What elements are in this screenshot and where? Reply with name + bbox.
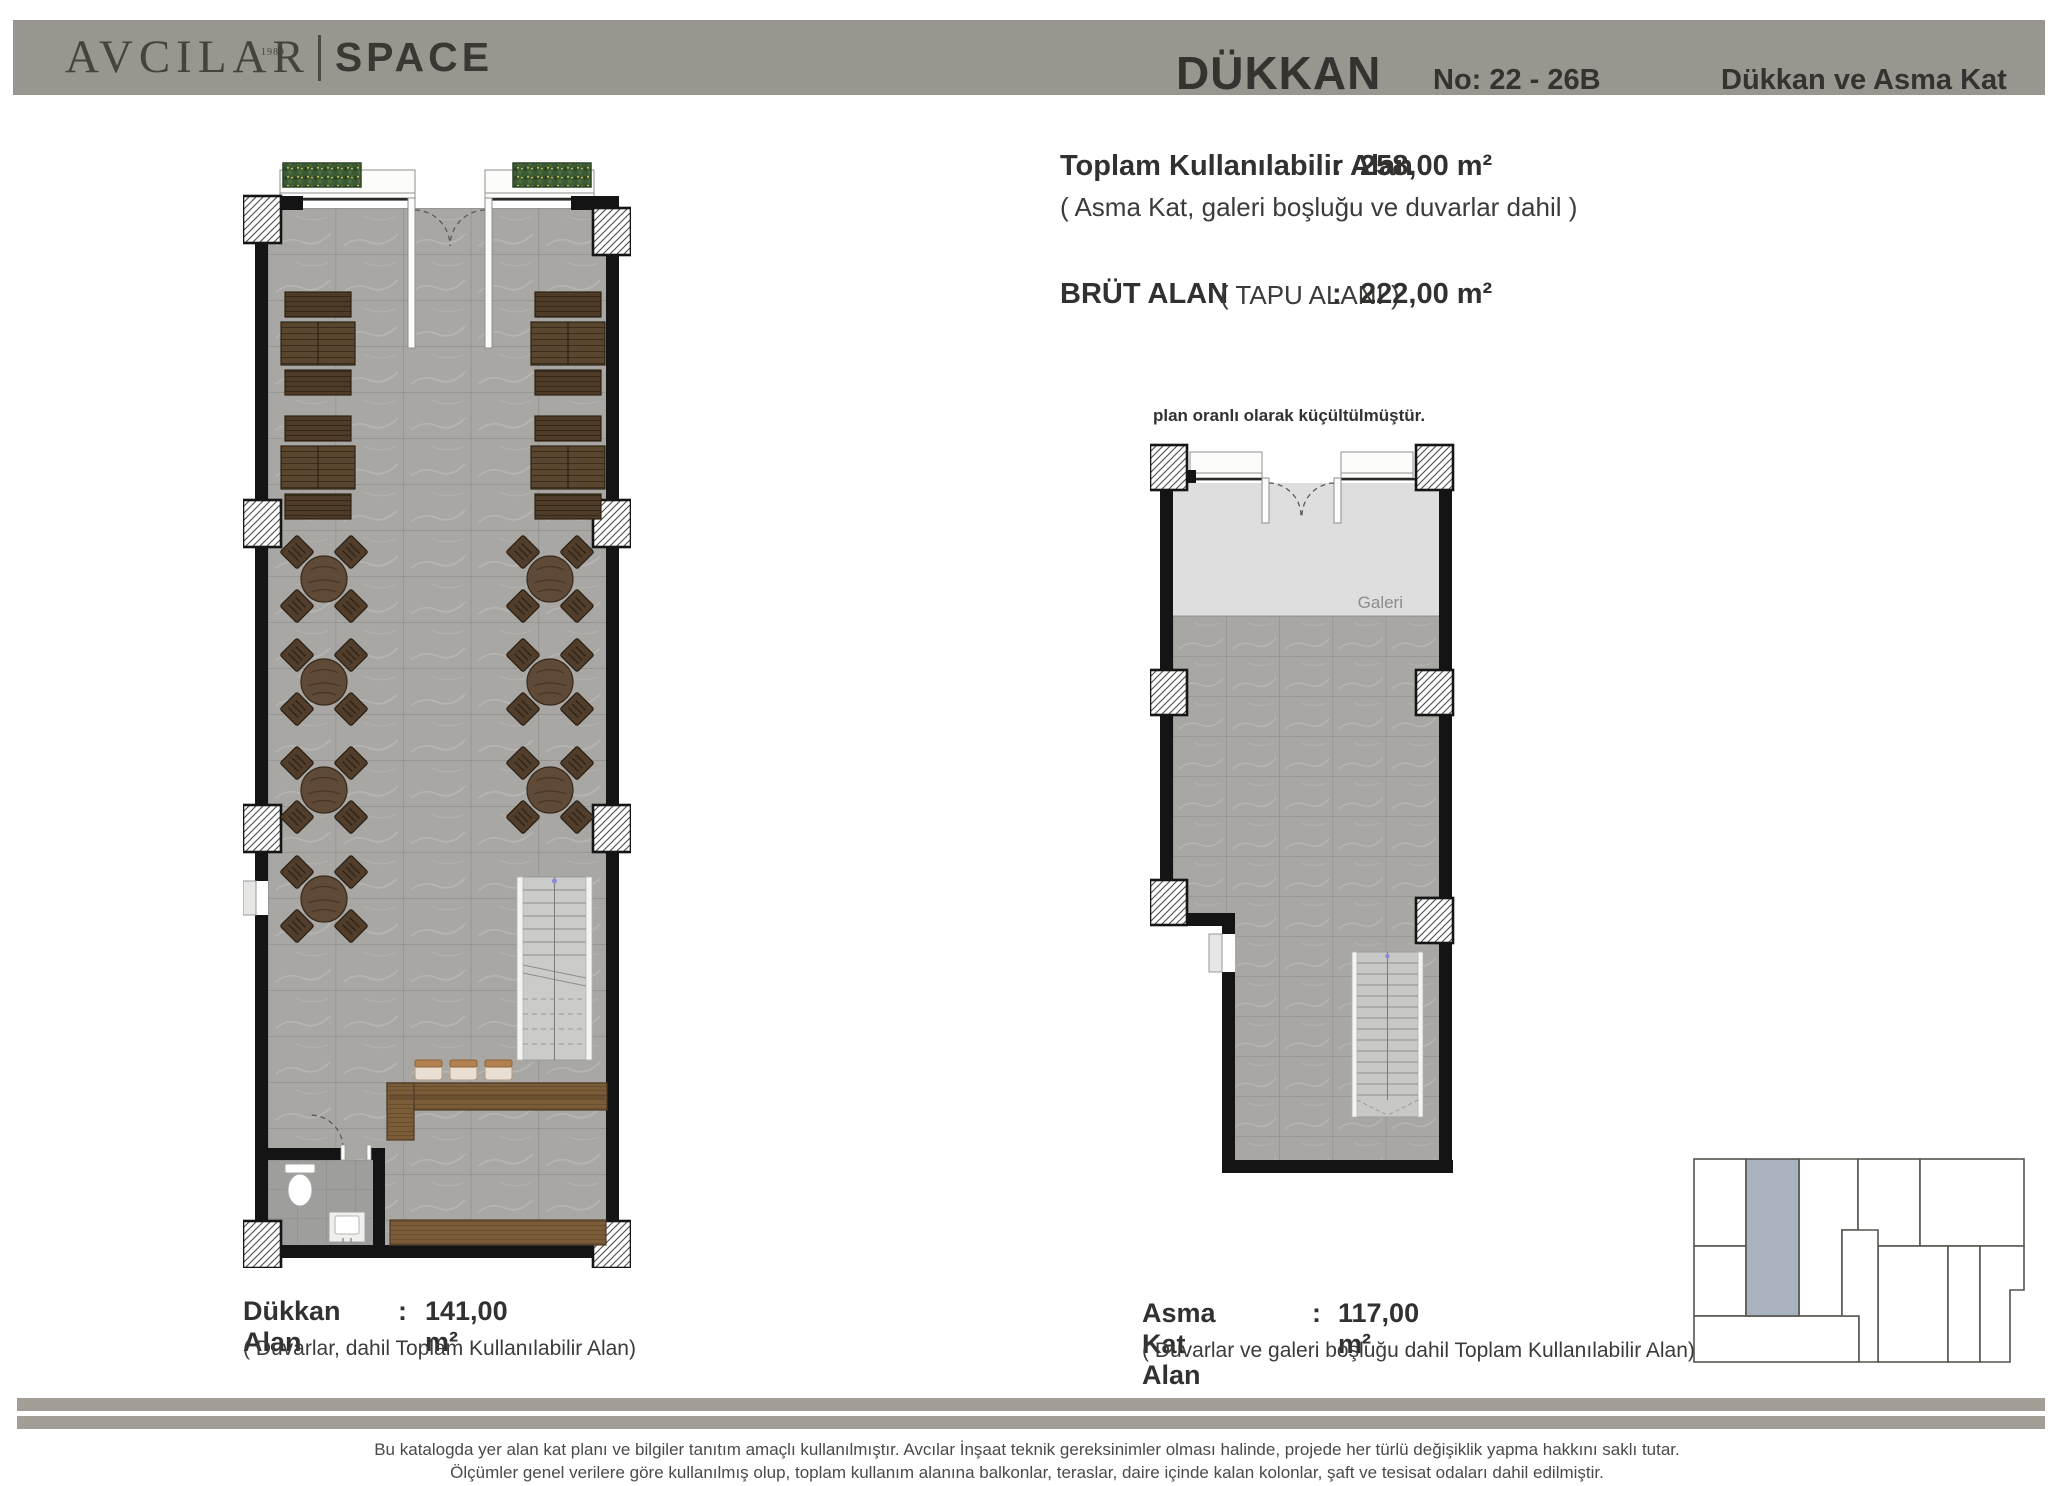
side-door xyxy=(1209,934,1222,972)
galeri-label: Galeri xyxy=(1358,593,1403,612)
dukkan-area-note: ( Duvarlar, dahil Toplam Kullanılabilir … xyxy=(243,1337,636,1361)
site-key-plan xyxy=(1693,1158,2026,1364)
stairs xyxy=(1352,952,1423,1117)
dukkan-floor-plan xyxy=(243,148,631,1268)
unit-outline xyxy=(1694,1246,1746,1316)
total-area-line: Toplam Kullanılabilir Alan : 258,00 m² xyxy=(1060,150,1960,190)
bench-table-set xyxy=(281,292,355,395)
gross-area-label: BRÜT ALAN xyxy=(1060,278,1228,311)
gross-area-line: BRÜT ALAN ( TAPU ALANI ) : 222,00 m² xyxy=(1060,278,1960,318)
total-area-note: ( Asma Kat, galeri boşluğu ve duvarlar d… xyxy=(1060,192,1577,223)
unit-outline xyxy=(1694,1316,1859,1362)
unit-number: No: 22 - 26B xyxy=(1433,64,1601,97)
unit-outline xyxy=(1878,1246,1948,1362)
stairs xyxy=(517,877,592,1060)
footer-bar-top xyxy=(17,1398,2045,1411)
page-title: DÜKKAN xyxy=(1176,46,1381,100)
side-door xyxy=(243,881,256,915)
unit-outline xyxy=(1920,1159,2024,1246)
bar-stool xyxy=(485,1060,512,1080)
bar-stool xyxy=(450,1060,477,1080)
planter xyxy=(513,163,591,187)
bar-stool xyxy=(415,1060,442,1080)
highlighted-unit xyxy=(1746,1159,1799,1316)
header-bar: AVCILAR 1989 SPACE DÜKKAN No: 22 - 26B D… xyxy=(13,20,2045,95)
bottom-bench xyxy=(390,1220,606,1245)
footer-bar-bottom xyxy=(17,1416,2045,1429)
key-plan-units xyxy=(1694,1159,2024,1362)
footer-disclaimer-line2: Ölçümler genel verilere göre kullanılmış… xyxy=(0,1463,2054,1483)
asma-kat-area-note: ( Duvarlar ve galeri boşluğu dahil Topla… xyxy=(1142,1339,1695,1363)
asma-kat-floor-plan: Galeri xyxy=(1150,443,1462,1177)
catalog-page: AVCILAR 1989 SPACE DÜKKAN No: 22 - 26B D… xyxy=(0,0,2054,1486)
logo-divider xyxy=(318,35,321,81)
asma-kat-area-colon: : xyxy=(1312,1298,1321,1329)
brand-logo: AVCILAR 1989 SPACE xyxy=(65,20,493,95)
footer-disclaimer-line1: Bu katalogda yer alan kat planı ve bilgi… xyxy=(0,1440,2054,1460)
sink-icon xyxy=(329,1212,365,1242)
planter xyxy=(283,163,361,187)
dukkan-area-colon: : xyxy=(398,1296,407,1327)
unit-outline xyxy=(1980,1246,2024,1362)
logo-space-text: SPACE xyxy=(335,37,493,78)
unit-outline xyxy=(1694,1159,1746,1246)
bench-table-set xyxy=(281,416,355,519)
logo-year-text: 1989 xyxy=(261,47,285,58)
unit-outline xyxy=(1948,1246,1980,1362)
scale-note: plan oranlı olarak küçültülmüştür. xyxy=(1153,406,1425,426)
bench-table-set xyxy=(531,416,605,519)
gross-area-value: 222,00 m² xyxy=(1360,278,1492,311)
bench-table-set xyxy=(531,292,605,395)
total-area-value: 258,00 m² xyxy=(1360,150,1492,183)
page-subtitle: Dükkan ve Asma Kat xyxy=(1721,64,2007,97)
total-area-colon: : xyxy=(1332,150,1342,183)
gross-area-colon: : xyxy=(1332,278,1342,311)
